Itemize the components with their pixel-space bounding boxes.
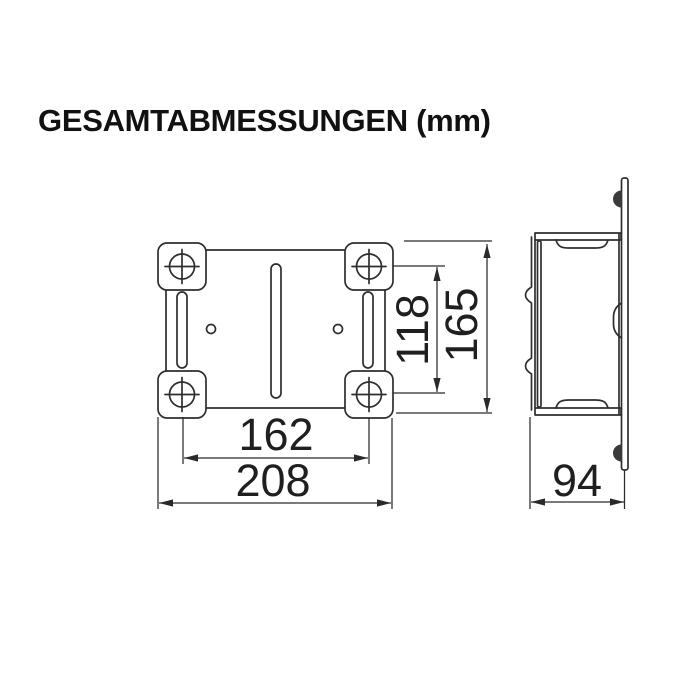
clip-tab-top <box>556 240 608 248</box>
front-view-mounting-plate <box>158 243 393 418</box>
slot-left <box>177 292 187 368</box>
dimension-label-depth: 94 <box>552 455 602 506</box>
front-wall-inner <box>538 241 542 407</box>
screw-boss-bottom <box>614 445 622 461</box>
dimension-label-overall-height: 165 <box>436 287 487 362</box>
technical-drawing: 118 165 162 208 94 <box>0 0 700 700</box>
dimension-label-overall-width: 208 <box>235 455 310 506</box>
front-wall-outer <box>526 237 532 410</box>
slot-right <box>363 292 373 368</box>
clip-tab-bottom <box>556 400 608 408</box>
small-hole-right <box>334 325 343 334</box>
small-hole-left <box>207 325 216 334</box>
box-top-wall <box>535 233 621 240</box>
dimension-label-hole-pitch-vertical: 118 <box>387 294 438 366</box>
back-plate-edge <box>622 178 629 470</box>
box-bottom-wall <box>535 408 621 415</box>
center-emboss <box>614 303 622 338</box>
screw-boss-top <box>614 191 622 207</box>
dimension-label-hole-pitch-horizontal: 162 <box>238 409 313 460</box>
side-profile-view <box>526 178 629 470</box>
slot-center <box>271 264 281 398</box>
drawing-page: GESAMTABMESSUNGEN (mm) <box>0 0 700 700</box>
